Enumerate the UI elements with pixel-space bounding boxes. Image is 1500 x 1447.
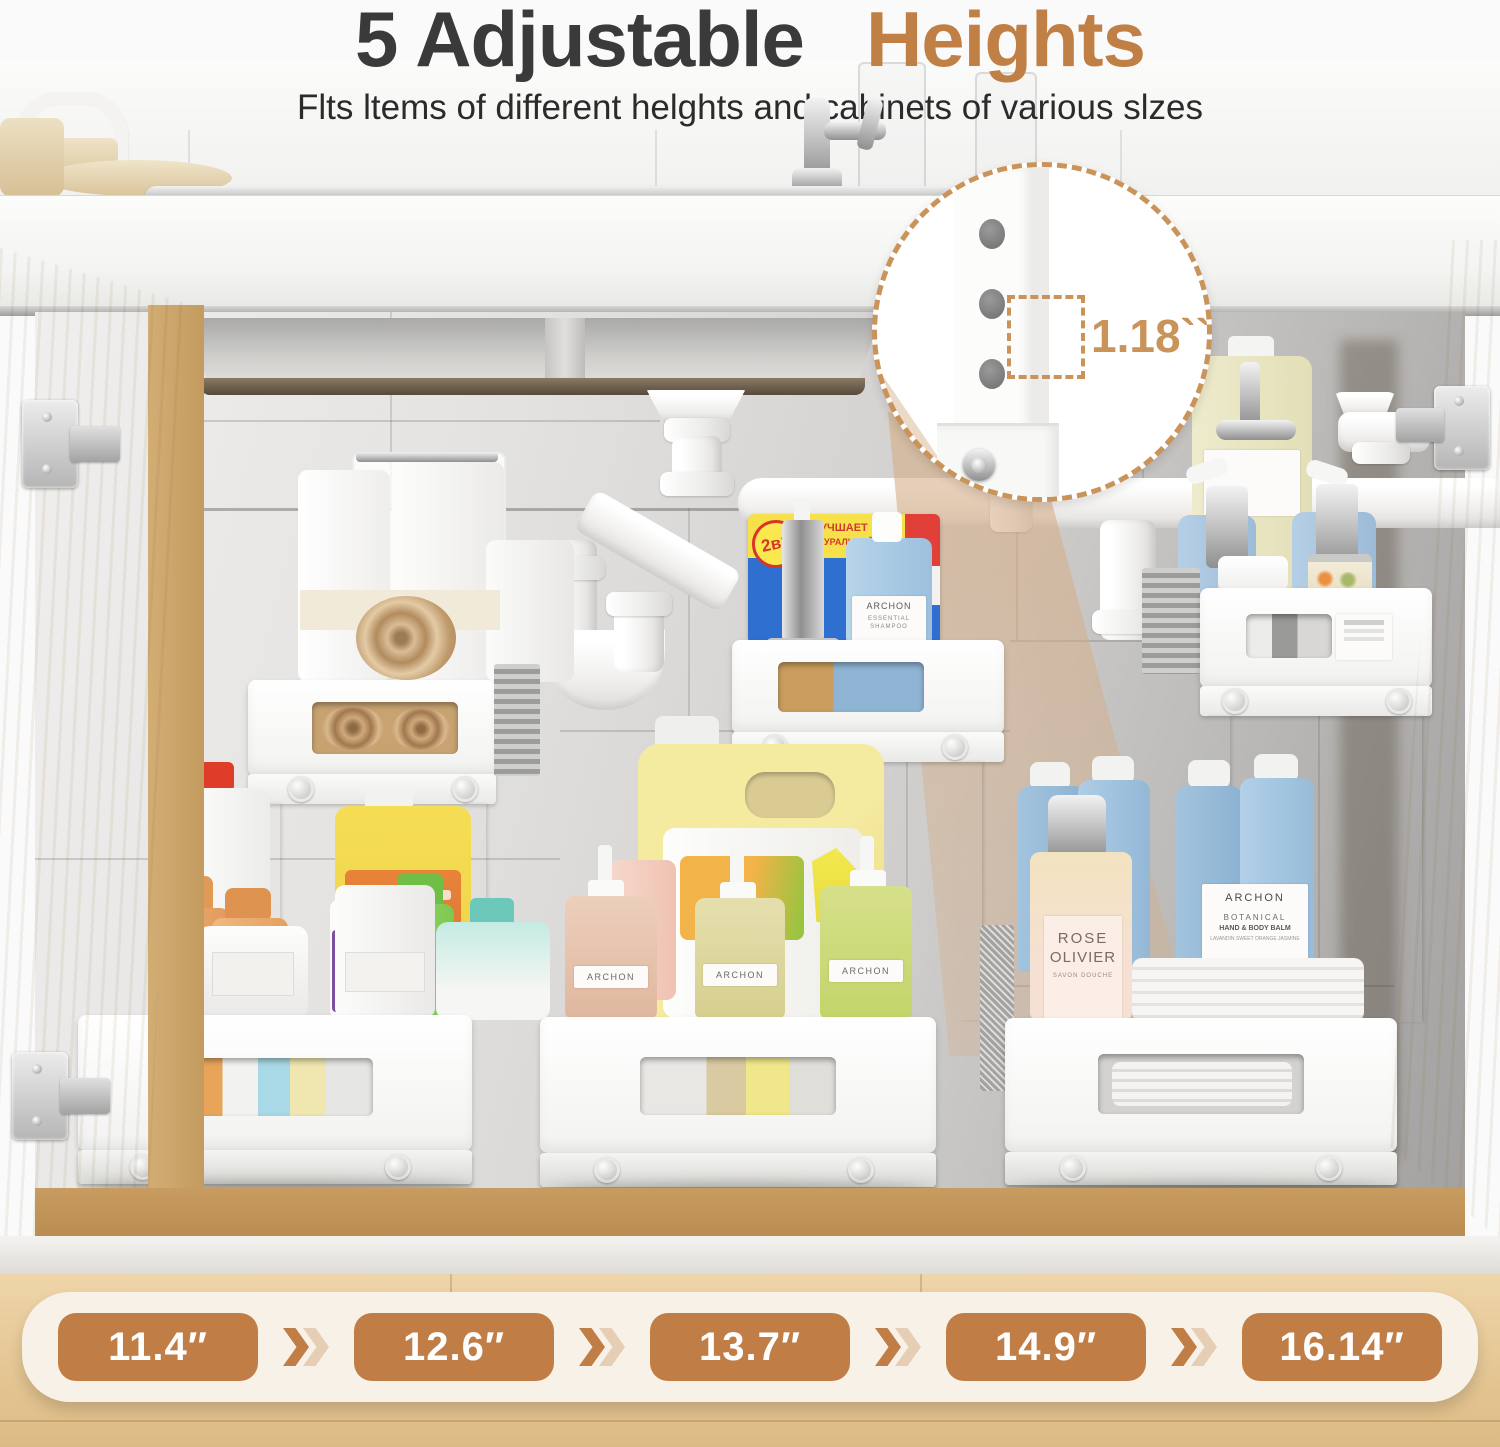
adjustable-heights-bar: 11.4″ 12.6″ 13.7″ 14.9″ 16.14″ bbox=[22, 1292, 1478, 1402]
chevron-right-icon bbox=[579, 1328, 625, 1366]
left-drawer-window bbox=[175, 1058, 373, 1116]
sticker-line bbox=[1344, 629, 1384, 633]
chrome-pump-bottle bbox=[782, 520, 824, 642]
archon-label: ARCHON bbox=[703, 964, 777, 986]
rose-line2: OLIVIER bbox=[1044, 949, 1122, 968]
height-pill-3: 13.7″ bbox=[650, 1313, 850, 1381]
adjustment-hole bbox=[979, 219, 1005, 249]
chevron-dark bbox=[579, 1328, 605, 1366]
product-advert-image: 5 Adjustable Heights Flts ltems of diffe… bbox=[0, 0, 1500, 1447]
screw bbox=[594, 1157, 620, 1183]
screw bbox=[942, 734, 968, 760]
chevron-right-icon bbox=[1171, 1328, 1217, 1366]
orange-bottle-cap bbox=[225, 888, 271, 922]
botanical-label: ARCHON BOTANICAL HAND & BODY BALM LAVAND… bbox=[1202, 884, 1308, 968]
sticker-line bbox=[1344, 620, 1384, 625]
rose-olivier-label: ROSE OLIVIER SAVON DOUCHE bbox=[1044, 916, 1122, 1018]
countertop bbox=[0, 195, 1500, 316]
rolled-towel bbox=[356, 596, 456, 680]
height-pill-4: 14.9″ bbox=[946, 1313, 1146, 1381]
hinge-arm bbox=[70, 426, 120, 462]
archon-label: ARCHON bbox=[829, 960, 903, 982]
pump-tube bbox=[1240, 362, 1260, 426]
chevron-dark bbox=[283, 1328, 309, 1366]
hinge-screw bbox=[42, 412, 52, 422]
folded-towels bbox=[1132, 958, 1364, 1022]
height-pill-1: 11.4″ bbox=[58, 1313, 258, 1381]
measurement-text: 1.18`` bbox=[1091, 309, 1211, 363]
middle-drawer-window bbox=[640, 1057, 836, 1115]
adjustment-hole bbox=[979, 359, 1005, 389]
archon-pump-bottle-green bbox=[820, 886, 912, 1018]
cabinet-floor bbox=[35, 1188, 1465, 1238]
towel-in-window bbox=[1112, 1062, 1292, 1106]
chevron-right-icon bbox=[283, 1328, 329, 1366]
canister-lid bbox=[356, 452, 498, 462]
screw bbox=[1316, 1155, 1342, 1181]
botanical-line3: LAVANDIN SWEET ORANGE JASMINE bbox=[1202, 936, 1308, 942]
hinge-screw bbox=[1454, 446, 1464, 456]
title-accent-text: Heights bbox=[866, 0, 1145, 83]
slide-rail bbox=[494, 664, 540, 776]
hinge-arm bbox=[60, 1078, 110, 1114]
floral-art bbox=[1316, 570, 1334, 588]
page-title: 5 Adjustable Heights bbox=[0, 0, 1500, 78]
hinge-screw bbox=[42, 464, 52, 474]
floor-plank-seam bbox=[0, 1420, 1500, 1422]
botanical-line1: BOTANICAL bbox=[1202, 913, 1308, 923]
screw-center bbox=[971, 457, 987, 473]
rose-line1: ROSE bbox=[1044, 930, 1122, 949]
teal-pump-bottle bbox=[436, 922, 550, 1020]
bottle-label bbox=[212, 952, 294, 996]
basket-sticker bbox=[1336, 614, 1392, 660]
shampoo-brand: ARCHON bbox=[852, 601, 926, 612]
pump-handle bbox=[1216, 420, 1296, 440]
botanical-brand: ARCHON bbox=[1202, 892, 1308, 906]
bottle-cap bbox=[1188, 760, 1230, 788]
bottle-label bbox=[345, 952, 425, 992]
shampoo-line2: SHAMPOO bbox=[852, 624, 926, 632]
chevron-dark bbox=[875, 1328, 901, 1366]
screw bbox=[848, 1157, 874, 1183]
adjustment-hole bbox=[979, 289, 1005, 319]
rolled-towel bbox=[392, 708, 450, 750]
screw bbox=[1386, 688, 1412, 714]
floral-art bbox=[1338, 572, 1358, 588]
hinge-screw bbox=[32, 1116, 42, 1126]
jug-handle-hole bbox=[745, 772, 835, 818]
rose-bottle-cap bbox=[1048, 795, 1106, 859]
height-pill-5: 16.14″ bbox=[1242, 1313, 1442, 1381]
height-pill-2: 12.6″ bbox=[354, 1313, 554, 1381]
screw bbox=[452, 776, 478, 802]
pipe-nut bbox=[1352, 442, 1410, 464]
page-subtitle: Flts ltems of different helghts and cabi… bbox=[0, 88, 1500, 128]
shampoo-line1: ESSENTIAL bbox=[852, 616, 926, 624]
screw bbox=[1060, 1155, 1086, 1181]
sticker-line bbox=[1344, 637, 1384, 641]
slide-rail bbox=[1142, 568, 1200, 674]
shampoo-label: ARCHON ESSENTIAL SHAMPOO bbox=[852, 596, 926, 642]
shampoo-pump bbox=[872, 512, 902, 542]
right-top-basket-window bbox=[1246, 614, 1332, 658]
bracket-lower-block bbox=[937, 423, 1059, 502]
rose-sub: SAVON DOUCHE bbox=[1044, 973, 1122, 981]
chevron-dark bbox=[1171, 1328, 1197, 1366]
archon-pump-bottle-pink bbox=[565, 896, 657, 1018]
spacing-dashed-box bbox=[1007, 295, 1085, 379]
middle-top-basket-window bbox=[778, 662, 924, 712]
archon-pump-bottle-yellow bbox=[695, 898, 785, 1018]
hinge-arm bbox=[1396, 408, 1444, 442]
box-text-line1: УЛУЧШАЕТ bbox=[806, 522, 932, 535]
screw bbox=[1222, 688, 1248, 714]
rolled-towel bbox=[322, 706, 384, 750]
botanical-line2: HAND & BODY BALM bbox=[1202, 925, 1308, 934]
pipe-nut bbox=[660, 472, 734, 496]
screw bbox=[385, 1154, 411, 1180]
organizer-leg bbox=[958, 762, 982, 1020]
title-dark-text: 5 Adjustable bbox=[355, 0, 804, 83]
hinge-screw bbox=[1454, 396, 1464, 406]
tile-grout bbox=[160, 420, 660, 422]
sink-divider bbox=[545, 318, 585, 380]
hinge-screw bbox=[32, 1064, 42, 1074]
chevron-right-icon bbox=[875, 1328, 921, 1366]
cabinet-base-panel bbox=[0, 1236, 1500, 1276]
detail-callout-circle: 1.18`` bbox=[872, 162, 1212, 502]
archon-label: ARCHON bbox=[574, 966, 648, 988]
pipe-nut bbox=[606, 592, 672, 616]
screw bbox=[288, 776, 314, 802]
wooden-board bbox=[0, 118, 64, 196]
sink-bottom-lip bbox=[200, 378, 865, 395]
